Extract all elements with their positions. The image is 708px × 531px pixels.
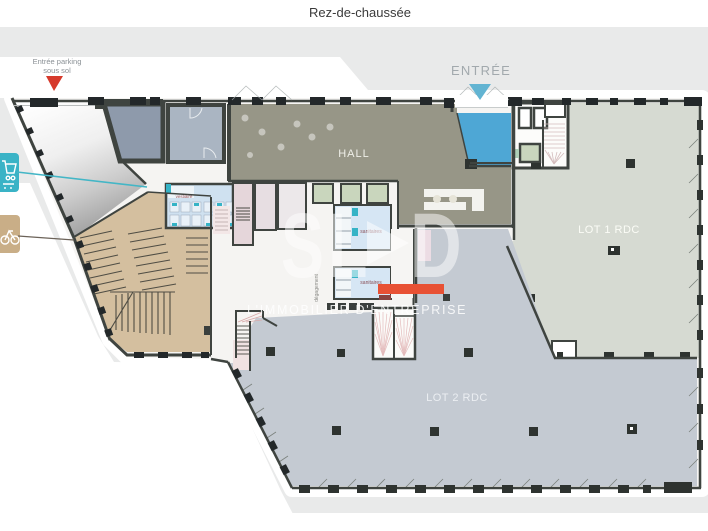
- svg-text:vestiaire: vestiaire: [176, 194, 193, 199]
- svg-text:D: D: [410, 194, 462, 297]
- svg-text:HALL: HALL: [338, 148, 370, 160]
- svg-text:L'IMMOBILIER D'ENTREPRISE: L'IMMOBILIER D'ENTREPRISE: [247, 303, 467, 317]
- svg-text:Entrée parking: Entrée parking: [33, 57, 82, 66]
- svg-text:ENTRÉE: ENTRÉE: [451, 63, 511, 78]
- svg-text:Rez-de-chaussée: Rez-de-chaussée: [309, 5, 411, 20]
- svg-text:SL: SL: [281, 194, 372, 297]
- svg-text:LOT 2 RDC: LOT 2 RDC: [426, 392, 488, 404]
- svg-text:LOT 1 RDC: LOT 1 RDC: [578, 224, 640, 236]
- svg-text:sous sol: sous sol: [43, 66, 71, 75]
